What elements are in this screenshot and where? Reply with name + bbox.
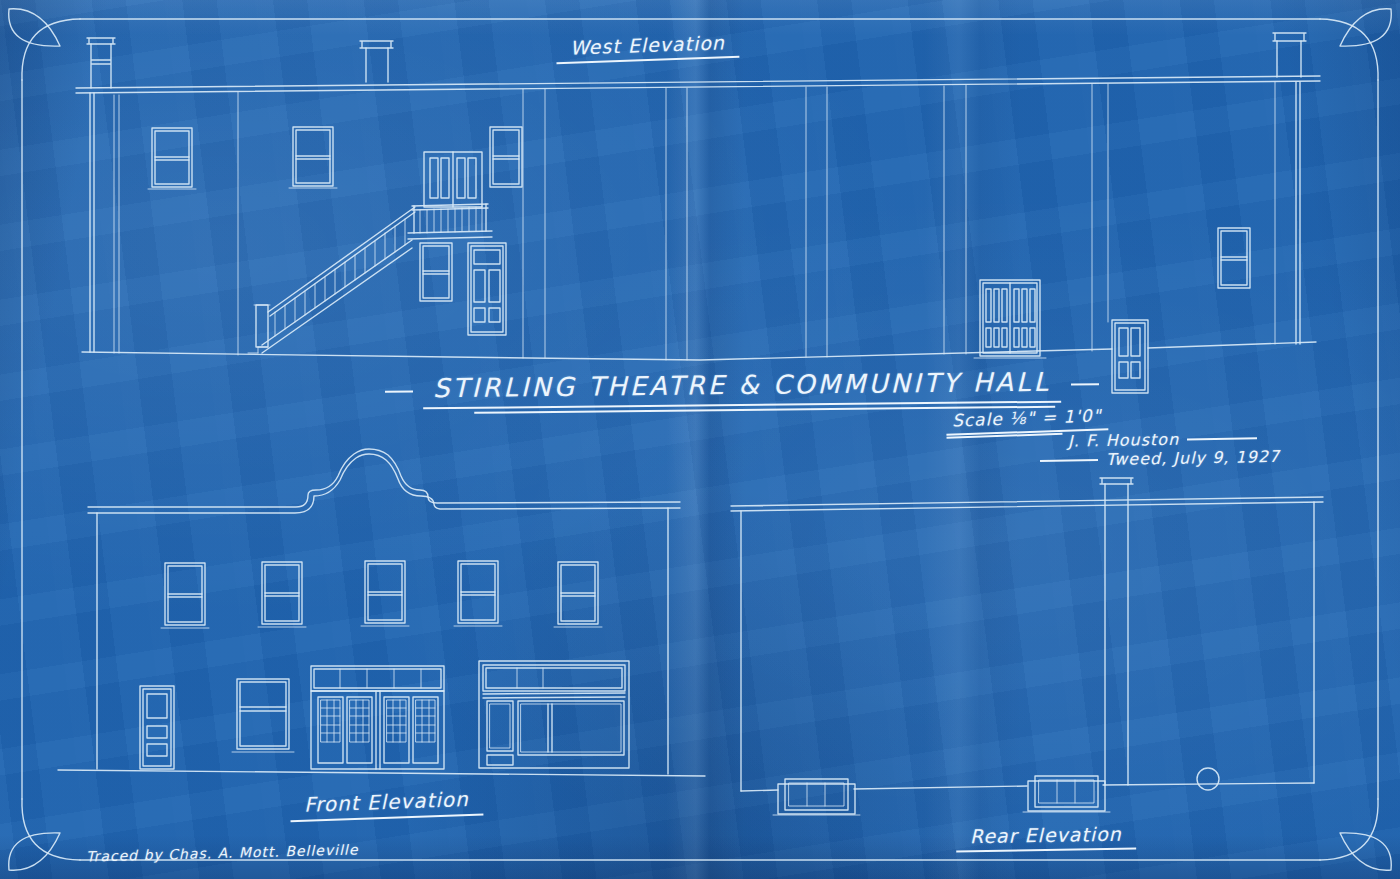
rear-elevation-text: Rear Elevation: [956, 822, 1136, 852]
window: [1218, 228, 1250, 288]
border-corner-ornament: [9, 9, 80, 80]
chimney-middle: [360, 41, 393, 82]
window: [148, 128, 196, 189]
basement-window: [1023, 776, 1110, 812]
double-door: [974, 280, 1046, 358]
entry-door: [140, 686, 174, 769]
window: [258, 562, 306, 627]
balcony-railing: [408, 204, 492, 239]
architect-name: J. F. Houston: [1068, 430, 1180, 451]
storefront: [479, 661, 629, 768]
window: [289, 127, 337, 188]
title-dash-left: [385, 390, 413, 392]
rear-elevation-label: Rear Elevation: [956, 822, 1136, 852]
window: [454, 561, 502, 626]
exterior-staircase: [248, 207, 415, 353]
door-with-transom: [468, 243, 506, 335]
window: [490, 127, 522, 187]
place-date-text: Tweed, July 9, 1927: [1106, 447, 1280, 469]
date-dash: [1040, 459, 1098, 462]
balcony-double-door: [424, 152, 482, 207]
west-elevation-drawing: [76, 33, 1320, 393]
pipe-outlet: [1197, 768, 1219, 790]
title-dash-right: [1071, 383, 1099, 385]
drawing-title-text: STIRLING THEATRE & COMMUNITY HALL: [423, 367, 1061, 410]
window: [420, 243, 452, 301]
signature-dash: [1187, 437, 1257, 440]
window: [554, 562, 602, 627]
rear-chimney: [1100, 478, 1133, 785]
window: [361, 561, 409, 626]
front-elevation-drawing: [58, 449, 705, 776]
blueprint-sheet: West Elevation STIRLING THEATRE & COMMUN…: [0, 0, 1400, 879]
window: [161, 563, 209, 628]
chimney-right: [1273, 33, 1306, 77]
drawing-title: STIRLING THEATRE & COMMUNITY HALL: [385, 366, 1099, 409]
theatre-entrance: [311, 666, 444, 769]
panel-door: [1112, 320, 1148, 393]
basement-window: [773, 779, 860, 815]
chimney-left: [87, 38, 115, 88]
window: [232, 679, 294, 752]
rear-elevation-drawing: [731, 478, 1323, 815]
